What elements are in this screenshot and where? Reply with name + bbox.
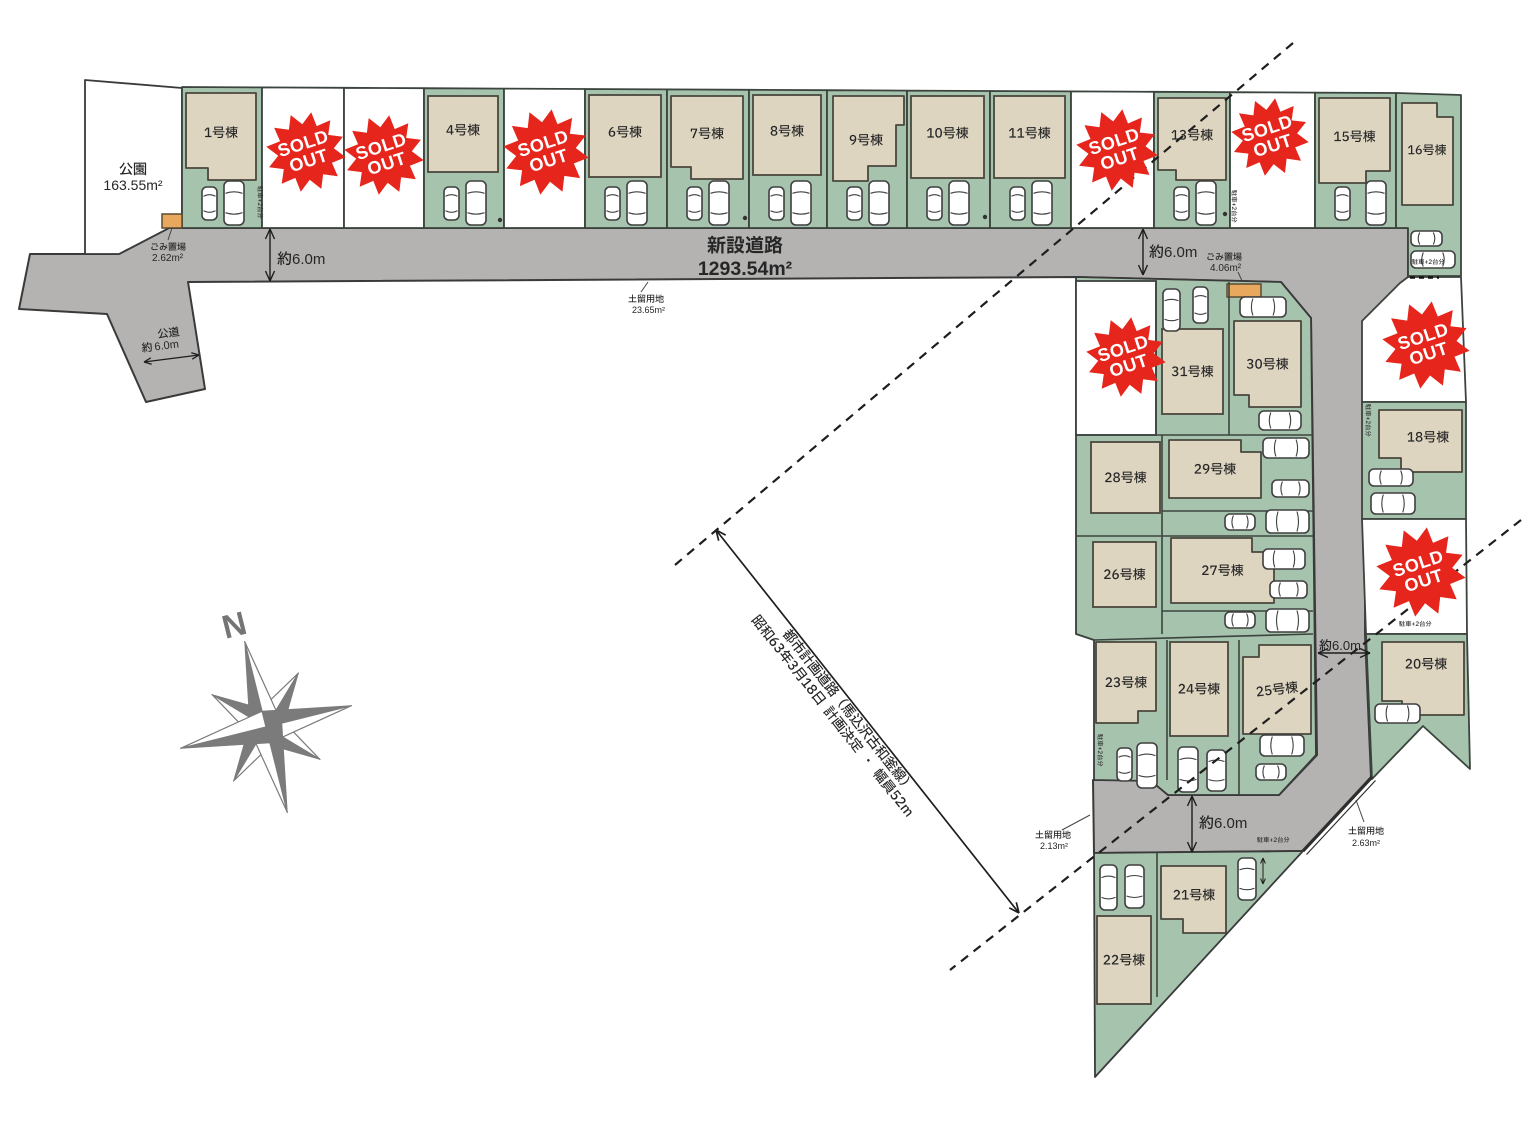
svg-text:163.55m²: 163.55m² xyxy=(103,177,162,193)
svg-text:2.13m²: 2.13m² xyxy=(1040,841,1068,851)
svg-text:6.0m: 6.0m xyxy=(1214,815,1247,832)
svg-text:2.63m²: 2.63m² xyxy=(1352,838,1380,848)
svg-text:1293.54m²: 1293.54m² xyxy=(698,258,793,280)
svg-text:6.0m: 6.0m xyxy=(1332,638,1361,653)
svg-text:23.65m²: 23.65m² xyxy=(632,305,665,315)
svg-text:4.06m²: 4.06m² xyxy=(1210,263,1242,274)
svg-text:6.0m: 6.0m xyxy=(292,251,325,268)
svg-text:6.0m: 6.0m xyxy=(1164,244,1197,261)
svg-text:2.62m²: 2.62m² xyxy=(152,253,184,264)
